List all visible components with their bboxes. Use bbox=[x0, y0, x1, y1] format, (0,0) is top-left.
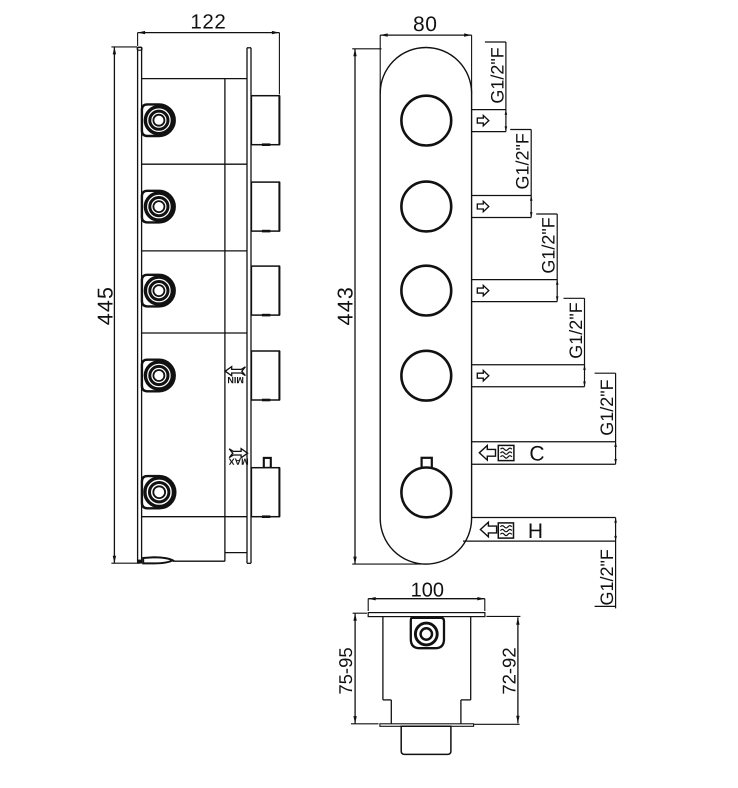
svg-text:MIN: MIN bbox=[227, 375, 244, 385]
svg-text:G1/2"F: G1/2"F bbox=[487, 47, 507, 103]
svg-text:72-92: 72-92 bbox=[499, 647, 520, 694]
svg-text:445: 445 bbox=[93, 286, 117, 325]
svg-text:C: C bbox=[529, 442, 544, 465]
svg-text:122: 122 bbox=[190, 11, 226, 34]
svg-text:G1/2"F: G1/2"F bbox=[566, 302, 586, 358]
svg-text:80: 80 bbox=[413, 13, 438, 36]
svg-text:75-95: 75-95 bbox=[335, 647, 356, 694]
svg-text:G1/2"F: G1/2"F bbox=[539, 217, 559, 273]
svg-text:G1/2"F: G1/2"F bbox=[513, 133, 533, 189]
svg-text:MAX: MAX bbox=[229, 457, 249, 467]
svg-text:443: 443 bbox=[333, 286, 357, 325]
svg-text:G1/2"F: G1/2"F bbox=[597, 379, 617, 435]
svg-text:G1/2"F: G1/2"F bbox=[597, 549, 617, 605]
svg-text:H: H bbox=[528, 520, 543, 543]
